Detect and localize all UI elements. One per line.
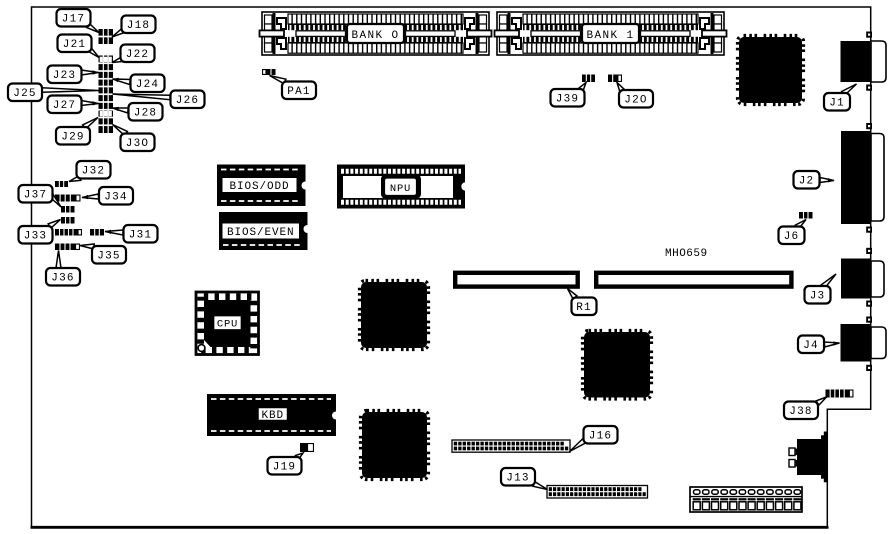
- svg-text:J6: J6: [784, 231, 800, 243]
- svg-text:J21: J21: [63, 39, 86, 51]
- svg-text:J28: J28: [134, 107, 157, 119]
- svg-text:J3O: J3O: [126, 138, 149, 150]
- svg-text:J39: J39: [556, 93, 579, 105]
- svg-text:J17: J17: [62, 13, 85, 25]
- svg-text:NPU: NPU: [390, 183, 411, 195]
- svg-text:BANK 1: BANK 1: [586, 30, 634, 42]
- svg-text:J1: J1: [829, 97, 845, 109]
- svg-text:J31: J31: [129, 229, 152, 241]
- svg-text:J2O: J2O: [624, 94, 647, 106]
- svg-text:J38: J38: [789, 406, 812, 418]
- svg-text:J2: J2: [799, 175, 815, 187]
- svg-text:BANK O: BANK O: [351, 30, 399, 42]
- svg-text:J35: J35: [97, 250, 120, 262]
- svg-text:J32: J32: [82, 165, 105, 177]
- svg-text:PA1: PA1: [287, 86, 310, 98]
- svg-text:BIOS/EVEN: BIOS/EVEN: [227, 227, 295, 239]
- svg-text:BIOS/ODD: BIOS/ODD: [229, 181, 289, 193]
- svg-text:J23: J23: [53, 70, 76, 82]
- svg-text:J18: J18: [127, 20, 150, 32]
- svg-text:J27: J27: [53, 100, 76, 112]
- svg-text:J34: J34: [104, 191, 127, 203]
- svg-text:J25: J25: [13, 88, 36, 100]
- svg-text:MHO659: MHO659: [665, 248, 708, 260]
- svg-text:J36: J36: [51, 272, 74, 284]
- svg-text:J22: J22: [126, 49, 149, 61]
- svg-text:R1: R1: [576, 302, 592, 314]
- svg-text:J19: J19: [273, 461, 296, 473]
- svg-text:J16: J16: [589, 430, 612, 442]
- svg-text:J13: J13: [506, 472, 529, 484]
- svg-text:J3: J3: [810, 290, 826, 302]
- svg-text:J24: J24: [136, 79, 159, 91]
- svg-text:CPU: CPU: [217, 319, 238, 331]
- svg-text:KBD: KBD: [262, 410, 285, 422]
- svg-text:J33: J33: [24, 230, 47, 242]
- svg-text:J4: J4: [803, 340, 819, 352]
- svg-text:J37: J37: [24, 189, 47, 201]
- svg-text:J29: J29: [61, 131, 84, 143]
- svg-text:J26: J26: [176, 95, 199, 107]
